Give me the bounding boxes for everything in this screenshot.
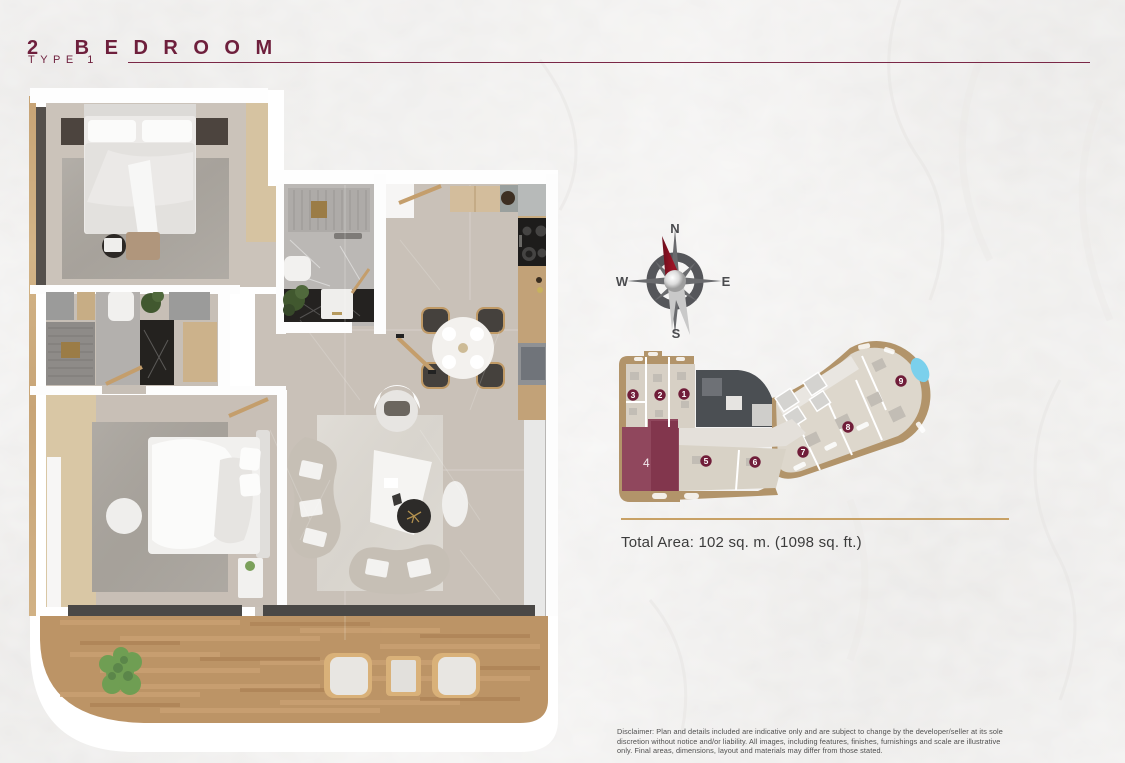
svg-text:2: 2 (658, 390, 663, 400)
svg-text:N: N (670, 221, 679, 236)
svg-text:7: 7 (801, 447, 806, 457)
svg-text:9: 9 (899, 376, 904, 386)
svg-text:6: 6 (753, 457, 758, 467)
svg-text:E: E (722, 274, 731, 289)
svg-text:5: 5 (704, 456, 709, 466)
svg-text:1: 1 (682, 389, 687, 399)
svg-text:8: 8 (846, 422, 851, 432)
svg-text:3: 3 (631, 390, 636, 400)
svg-text:W: W (616, 274, 629, 289)
svg-text:4: 4 (643, 456, 650, 470)
